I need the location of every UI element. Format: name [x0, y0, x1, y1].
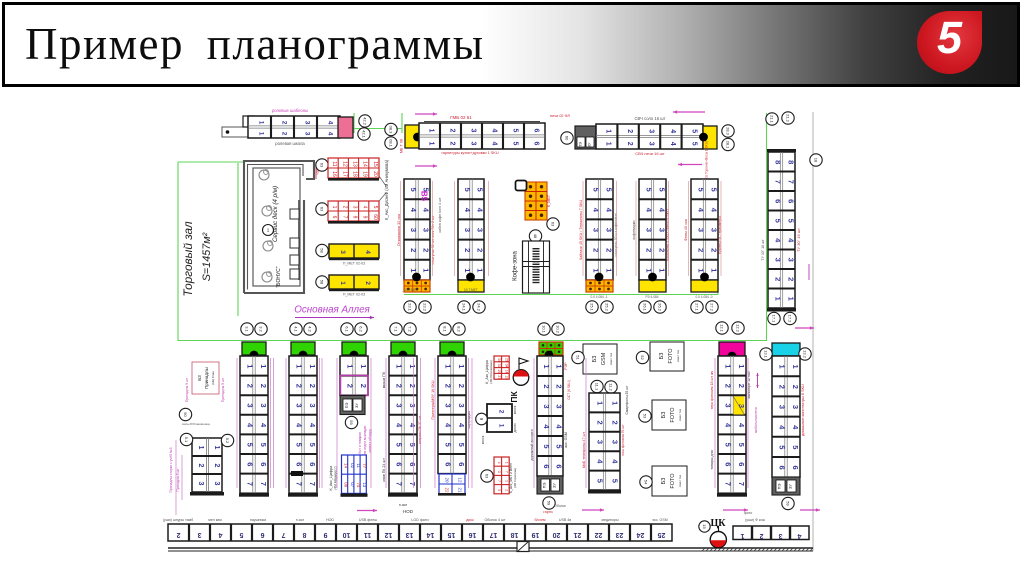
svg-text:фото: фото [744, 511, 752, 515]
svg-text:07: 07 [350, 482, 355, 487]
svg-text:Р.0 4.084: Р.0 4.084 [645, 295, 658, 299]
svg-text:5: 5 [239, 531, 243, 538]
svg-text:6: 6 [724, 462, 733, 466]
svg-text:11: 11 [364, 531, 372, 538]
svg-text:1: 1 [740, 532, 744, 539]
svg-text:5: 5 [259, 443, 268, 447]
svg-text:1: 1 [610, 401, 619, 405]
svg-text:2: 2 [449, 142, 456, 146]
svg-text:9: 9 [323, 531, 327, 538]
svg-text:3: 3 [422, 228, 431, 232]
svg-text:лиш фотохим 76 шт: лиш фотохим 76 шт [621, 424, 625, 456]
svg-text:11.1: 11.1 [595, 383, 600, 391]
svg-text:Чайники 45 SKU / Термопоты 7 S: Чайники 45 SKU / Термопоты 7 SKU [579, 199, 583, 260]
svg-text:3: 3 [778, 405, 787, 409]
svg-text:хватит оборуд: хватит оборуд [368, 428, 372, 453]
svg-text:экс. GSM: экс. GSM [652, 518, 667, 522]
svg-text:3: 3 [791, 405, 800, 409]
svg-text:картриджи: картриджи [467, 411, 471, 428]
svg-text:6.2: 6.2 [359, 326, 364, 332]
svg-text:1: 1 [463, 268, 472, 272]
svg-text:22: 22 [445, 487, 450, 493]
svg-text:17: 17 [490, 531, 498, 538]
svg-text:51: 51 [576, 355, 581, 360]
svg-text:3: 3 [213, 482, 220, 486]
svg-text:5: 5 [786, 219, 795, 223]
svg-text:6: 6 [259, 462, 268, 466]
svg-text:28.1: 28.1 [726, 141, 731, 150]
svg-text:1: 1 [696, 268, 705, 272]
svg-text:5: 5 [542, 444, 551, 448]
svg-text:коврики ПК 37 шт: коврики ПК 37 шт [418, 415, 422, 444]
svg-text:3: 3 [778, 532, 782, 539]
svg-text:2: 2 [197, 464, 204, 468]
svg-text:5: 5 [610, 479, 619, 483]
svg-text:5: 5 [591, 188, 600, 192]
svg-text:3: 3 [470, 129, 477, 133]
svg-text:8.2: 8.2 [457, 326, 462, 332]
svg-text:ПЭ: ПЭ [777, 484, 782, 490]
svg-text:3: 3 [463, 228, 472, 232]
svg-text:2: 2 [364, 281, 371, 285]
svg-text:21.2: 21.2 [786, 114, 791, 123]
svg-text:53: 53 [643, 414, 648, 419]
svg-text:5: 5 [512, 142, 519, 146]
svg-text:8: 8 [302, 531, 306, 538]
svg-text:3: 3 [457, 403, 466, 407]
svg-text:1: 1 [724, 364, 733, 368]
svg-text:2: 2 [610, 421, 619, 425]
svg-text:16: 16 [331, 171, 337, 177]
svg-text:LGD фанч: LGD фанч [411, 518, 428, 522]
svg-text:25: 25 [658, 531, 666, 538]
svg-text:9: 9 [362, 216, 368, 219]
svg-text:б/схем: б/схем [534, 518, 546, 522]
svg-text:1: 1 [778, 365, 787, 369]
svg-text:02: 02 [350, 463, 355, 468]
svg-text:Б3: Б3 [592, 356, 598, 363]
svg-text:1: 1 [644, 268, 653, 272]
svg-text:3: 3 [648, 129, 655, 133]
svg-text:3: 3 [724, 403, 733, 407]
svg-text:наушники: наушники [250, 518, 266, 522]
svg-text:21: 21 [574, 531, 582, 538]
svg-text:3: 3 [295, 403, 304, 407]
svg-text:ЗУ: ЗУ [354, 403, 359, 408]
svg-text:свм с тов: свм с тов [678, 408, 682, 421]
svg-text:12.2: 12.2 [736, 324, 741, 333]
svg-text:5: 5 [778, 445, 787, 449]
svg-text:гарнитуры кухни+духовки 1 SKU: гарнитуры кухни+духовки 1 SKU [441, 151, 498, 155]
svg-text:8.1: 8.1 [443, 326, 448, 332]
svg-text:77: 77 [362, 463, 367, 468]
svg-text:3: 3 [709, 228, 718, 232]
svg-text:5.1: 5.1 [184, 437, 189, 443]
svg-text:(уши) шнуры тамб: (уши) шнуры тамб [163, 518, 193, 522]
svg-text:7: 7 [281, 531, 285, 538]
svg-text:_00 Т.МЕТ: _00 Т.МЕТ [401, 288, 417, 292]
svg-text:6: 6 [555, 464, 564, 468]
svg-text:08: 08 [344, 482, 349, 487]
svg-text:7: 7 [259, 482, 268, 486]
svg-text:товары дня: товары дня [710, 450, 714, 469]
svg-text:25.2: 25.2 [605, 303, 610, 312]
svg-text:6: 6 [542, 464, 551, 468]
svg-text:19: 19 [532, 531, 540, 538]
svg-text:Б3: Б3 [197, 375, 202, 381]
svg-text:1: 1 [258, 121, 265, 125]
svg-text:2: 2 [724, 384, 733, 388]
svg-text:6: 6 [457, 462, 466, 466]
svg-text:4.1: 4.1 [294, 326, 299, 332]
svg-text:Принтеры/МФУ 16 SKU: Принтеры/МФУ 16 SKU [431, 380, 435, 419]
svg-text:3: 3 [308, 403, 317, 407]
svg-text:5: 5 [696, 188, 705, 192]
svg-text:3: 3 [786, 258, 795, 262]
svg-text:2: 2 [591, 248, 600, 252]
svg-text:2: 2 [759, 532, 763, 539]
svg-text:6: 6 [786, 199, 795, 203]
svg-text:5: 5 [791, 445, 800, 449]
svg-text:кофеварки: кофеварки [632, 220, 636, 239]
svg-text:12: 12 [385, 531, 393, 538]
svg-text:Бритвы 01 / триммеры: Бритвы 01 / триммеры [718, 216, 722, 254]
svg-text:ролевая школа: ролевая школа [275, 141, 305, 146]
svg-text:17.1: 17.1 [772, 315, 777, 324]
svg-text:(уши) Ф кож: (уши) Ф кож [745, 518, 765, 522]
svg-text:2: 2 [737, 384, 746, 388]
svg-text:2: 2 [444, 384, 453, 388]
svg-text:10.1: 10.1 [542, 325, 547, 334]
svg-text:63: 63 [320, 207, 325, 212]
svg-text:3: 3 [408, 403, 417, 407]
svg-text:1: 1 [457, 364, 466, 368]
svg-text:ПЭ: ПЭ [578, 142, 583, 148]
svg-text:мобильная печа: мобильная печа [754, 407, 758, 433]
svg-text:7: 7 [408, 482, 417, 486]
svg-text:маникюрн 12 наб: маникюрн 12 наб [747, 371, 751, 398]
svg-text:2: 2 [346, 384, 355, 388]
svg-text:25: 25 [497, 370, 501, 374]
svg-text:ПК: ПК [509, 391, 519, 403]
svg-text:5: 5 [444, 443, 453, 447]
svg-text:10: 10 [343, 531, 351, 538]
svg-text:ЗУ: ЗУ [788, 484, 793, 489]
svg-text:6: 6 [533, 142, 540, 146]
svg-text:26.2: 26.2 [658, 303, 663, 312]
svg-text:3: 3 [395, 403, 404, 407]
svg-text:5: 5 [773, 219, 782, 223]
svg-text:18: 18 [814, 158, 819, 163]
svg-text:59: 59 [349, 420, 354, 425]
svg-text:Смартфоны 35 шт: Смартфоны 35 шт [625, 385, 629, 414]
svg-text:5: 5 [690, 129, 697, 133]
svg-text:15: 15 [372, 161, 378, 167]
svg-text:ГМБ 02 61: ГМБ 02 61 [450, 115, 472, 120]
svg-text:1: 1 [542, 364, 551, 368]
svg-text:5.2: 5.2 [225, 438, 230, 444]
svg-text:2: 2 [709, 248, 718, 252]
svg-text:1: 1 [595, 401, 604, 405]
svg-text:3: 3 [259, 403, 268, 407]
svg-text:3: 3 [352, 206, 358, 209]
svg-text:17: 17 [341, 171, 347, 177]
svg-text:19: 19 [362, 171, 368, 177]
svg-text:3: 3 [610, 440, 619, 444]
svg-text:П_МЕТ 02-03: П_МЕТ 02-03 [343, 262, 365, 266]
svg-text:5: 5 [372, 206, 378, 209]
svg-text:14: 14 [427, 531, 435, 538]
svg-text:7: 7 [395, 482, 404, 486]
svg-text:10.2: 10.2 [556, 325, 561, 334]
svg-text:1: 1 [605, 129, 612, 133]
svg-text:6: 6 [773, 199, 782, 203]
svg-text:2: 2 [498, 410, 505, 414]
svg-text:3: 3 [339, 250, 346, 254]
svg-text:киоск: киоск [513, 405, 517, 414]
svg-text:ЗУ: ЗУ [587, 142, 592, 147]
svg-text:свм с тов: свм с тов [609, 352, 613, 365]
svg-text:1: 1 [213, 446, 220, 450]
svg-text:23: 23 [616, 531, 624, 538]
svg-text:8: 8 [773, 160, 782, 164]
svg-text:1: 1 [331, 206, 337, 209]
svg-text:4: 4 [797, 532, 801, 539]
svg-text:4: 4 [669, 142, 676, 146]
svg-text:4: 4 [362, 206, 368, 209]
svg-text:для отдел выкладки: для отдел выкладки [363, 425, 367, 456]
svg-text:Оболок: Оболок [554, 504, 566, 508]
svg-text:В5: В5 [420, 191, 429, 202]
svg-text:1: 1 [308, 364, 317, 368]
svg-text:быт и товаров: быт и товаров [358, 432, 362, 454]
svg-text:4: 4 [669, 129, 676, 133]
svg-text:7.1: 7.1 [394, 326, 399, 332]
svg-text:S=1457м²: S=1457м² [201, 232, 213, 281]
svg-text:"БОНУС": "БОНУС" [276, 266, 282, 287]
svg-text:34: 34 [504, 364, 508, 368]
svg-text:СВЧ печи 16 шт: СВЧ печи 16 шт [635, 151, 665, 156]
svg-text:ПЭ: ПЭ [344, 403, 349, 409]
svg-text:15: 15 [448, 531, 456, 538]
svg-text:2: 2 [308, 384, 317, 388]
svg-text:2: 2 [281, 121, 288, 125]
svg-text:22: 22 [595, 531, 603, 538]
svg-text:акс. GSM: акс. GSM [564, 432, 568, 448]
svg-text:8: 8 [786, 160, 795, 164]
svg-text:3: 3 [197, 482, 204, 486]
svg-text:2: 2 [246, 384, 255, 388]
svg-text:5: 5 [595, 479, 604, 483]
svg-text:5: 5 [408, 443, 417, 447]
svg-text:2: 2 [542, 384, 551, 388]
svg-text:1: 1 [258, 132, 265, 136]
svg-text:4.2: 4.2 [308, 326, 313, 332]
svg-text:Б3: Б3 [659, 353, 665, 360]
svg-text:6: 6 [246, 462, 255, 466]
svg-text:3: 3 [657, 228, 666, 232]
svg-text:диск: диск [466, 518, 474, 522]
svg-text:2: 2 [555, 384, 564, 388]
svg-text:3: 3 [542, 404, 551, 408]
svg-text:(НЕ) Слав: (НЕ) Слав [211, 371, 215, 385]
svg-text:63: 63 [551, 222, 556, 227]
svg-text:3: 3 [604, 228, 613, 232]
svg-text:3: 3 [497, 471, 501, 473]
svg-text:63: 63 [485, 474, 490, 479]
svg-text:58: 58 [320, 280, 325, 285]
svg-text:25.1: 25.1 [590, 303, 595, 312]
svg-text:14: 14 [344, 463, 349, 468]
svg-text:24.1: 24.1 [462, 303, 467, 312]
svg-text:3: 3 [476, 228, 485, 232]
svg-text:18: 18 [352, 171, 358, 177]
svg-text:60: 60 [372, 214, 378, 220]
svg-text:21: 21 [458, 487, 463, 493]
svg-text:6: 6 [295, 462, 304, 466]
svg-text:2: 2 [449, 129, 456, 133]
svg-text:1: 1 [591, 268, 600, 272]
svg-text:1: 1 [791, 365, 800, 369]
svg-text:2: 2 [259, 384, 268, 388]
svg-text:5: 5 [724, 443, 733, 447]
svg-text:23.1: 23.1 [408, 303, 413, 312]
svg-text:2: 2 [341, 206, 347, 209]
svg-text:7: 7 [341, 216, 347, 219]
svg-text:ПЭ: ПЭ [542, 483, 547, 489]
svg-text:п.скл: п.скл [296, 518, 304, 522]
svg-text:3: 3 [696, 228, 705, 232]
svg-text:42.2: 42.2 [363, 117, 368, 126]
svg-text:50: 50 [183, 412, 188, 417]
svg-text:5: 5 [690, 142, 697, 146]
svg-text:3: 3 [595, 440, 604, 444]
svg-text:киоск: киоск [481, 435, 485, 444]
svg-text:GSM: GSM [601, 352, 607, 365]
svg-text:5: 5 [644, 188, 653, 192]
svg-text:1: 1 [259, 364, 268, 368]
svg-text:3: 3 [444, 403, 453, 407]
svg-text:К_Акс_Цифра: К_Акс_Цифра [329, 465, 333, 491]
svg-text:мединоры: мединоры [601, 518, 618, 522]
svg-text:2: 2 [476, 248, 485, 252]
svg-text:28.3: 28.3 [726, 127, 731, 136]
svg-text:5: 5 [308, 443, 317, 447]
svg-text:59: 59 [547, 501, 552, 506]
svg-text:3.2: 3.2 [259, 326, 264, 332]
svg-text:6.1: 6.1 [345, 326, 350, 332]
svg-text:6: 6 [408, 462, 417, 466]
svg-text:Кофе-зона: Кофе-зона [513, 250, 519, 280]
svg-text:дорожный ассорти: дорожный ассорти [530, 429, 534, 460]
svg-text:5: 5 [709, 188, 718, 192]
svg-text:Принадлы 8 шт: Принадлы 8 шт [176, 468, 180, 491]
svg-text:34: 34 [497, 358, 501, 362]
svg-text:7: 7 [246, 482, 255, 486]
svg-text:2: 2 [504, 489, 508, 491]
svg-text:клав ПК 24 шт: клав ПК 24 шт [382, 458, 386, 482]
svg-text:1: 1 [409, 268, 418, 272]
svg-text:ЗУ: ЗУ [552, 483, 557, 488]
svg-text:2: 2 [604, 248, 613, 252]
svg-text:42.1: 42.1 [362, 130, 367, 139]
svg-text:2: 2 [408, 384, 417, 388]
svg-text:_00 Т.МЕТ: _00 Т.МЕТ [461, 288, 477, 292]
svg-text:23.2: 23.2 [423, 303, 428, 312]
svg-text:3: 3 [409, 228, 418, 232]
svg-text:16: 16 [469, 531, 477, 538]
svg-text:Комбайны 4 SKU / Весы 8 SKU: Комбайны 4 SKU / Весы 8 SKU [666, 209, 670, 261]
svg-text:1: 1 [359, 364, 368, 368]
svg-text:1: 1 [504, 480, 508, 482]
svg-text:60: 60 [565, 136, 570, 141]
svg-text:ОСТ (6 SKU): ОСТ (6 SKU) [567, 380, 571, 400]
svg-text:2: 2 [657, 248, 666, 252]
svg-text:2: 2 [595, 421, 604, 425]
svg-text:11: 11 [331, 161, 337, 166]
svg-text:Основная Аллея: Основная Аллея [294, 305, 370, 316]
svg-text:вилы 8/Упаковшица: вилы 8/Упаковшица [182, 422, 210, 426]
svg-text:домашние кинотеатры 8 SKU: домашние кинотеатры 8 SKU [801, 384, 805, 436]
svg-text:3: 3 [773, 258, 782, 262]
svg-text:ролевые шаблоны: ролевые шаблоны [272, 108, 308, 113]
svg-text:7: 7 [308, 482, 317, 486]
svg-text:1: 1 [737, 364, 746, 368]
svg-text:К_МБТ: К_МБТ [547, 194, 551, 207]
svg-text:13.2: 13.2 [803, 350, 808, 359]
svg-text:4: 4 [327, 132, 334, 136]
svg-text:4: 4 [491, 129, 498, 133]
svg-text:2: 2 [778, 385, 787, 389]
svg-text:2: 2 [791, 385, 800, 389]
svg-text:12: 12 [458, 477, 463, 483]
svg-text:(4М Горелина): (4М Горелина) [513, 468, 517, 488]
svg-text:2: 2 [176, 531, 180, 538]
svg-text:1: 1 [604, 268, 613, 272]
svg-text:08.3: 08.3 [389, 126, 394, 135]
svg-text:Принадлы: Принадлы [204, 367, 209, 389]
svg-text:3: 3 [644, 228, 653, 232]
svg-text:5: 5 [497, 489, 501, 491]
svg-text:2: 2 [409, 248, 418, 252]
svg-text:11.2: 11.2 [609, 383, 614, 391]
svg-text:HOD: HOD [403, 509, 414, 514]
svg-text:13.1: 13.1 [764, 350, 769, 359]
svg-text:1: 1 [428, 129, 435, 133]
svg-text:6: 6 [331, 216, 337, 219]
svg-text:27.1: 27.1 [695, 303, 700, 312]
svg-text:24: 24 [637, 531, 645, 538]
svg-text:6: 6 [737, 462, 746, 466]
svg-text:3: 3 [648, 142, 655, 146]
svg-text:20: 20 [445, 477, 450, 483]
svg-text:П_МЕТ 02-03: П_МЕТ 02-03 [343, 293, 365, 297]
svg-text:2: 2 [281, 132, 288, 136]
svg-text:2: 2 [295, 384, 304, 388]
svg-text:ТУ 30'' 16 шт: ТУ 30'' 16 шт [796, 228, 801, 252]
svg-text:15: 15 [702, 524, 707, 529]
svg-text:7: 7 [724, 482, 733, 486]
svg-text:14: 14 [362, 161, 368, 167]
svg-text:5: 5 [409, 188, 418, 192]
svg-text:7: 7 [295, 482, 304, 486]
svg-text:2: 2 [644, 248, 653, 252]
svg-text:4: 4 [491, 142, 498, 146]
svg-text:18: 18 [511, 531, 519, 538]
svg-text:печи 02 ФЛ: печи 02 ФЛ [550, 114, 570, 118]
svg-text:FOTO: FOTO [670, 407, 676, 423]
svg-text:2: 2 [422, 248, 431, 252]
